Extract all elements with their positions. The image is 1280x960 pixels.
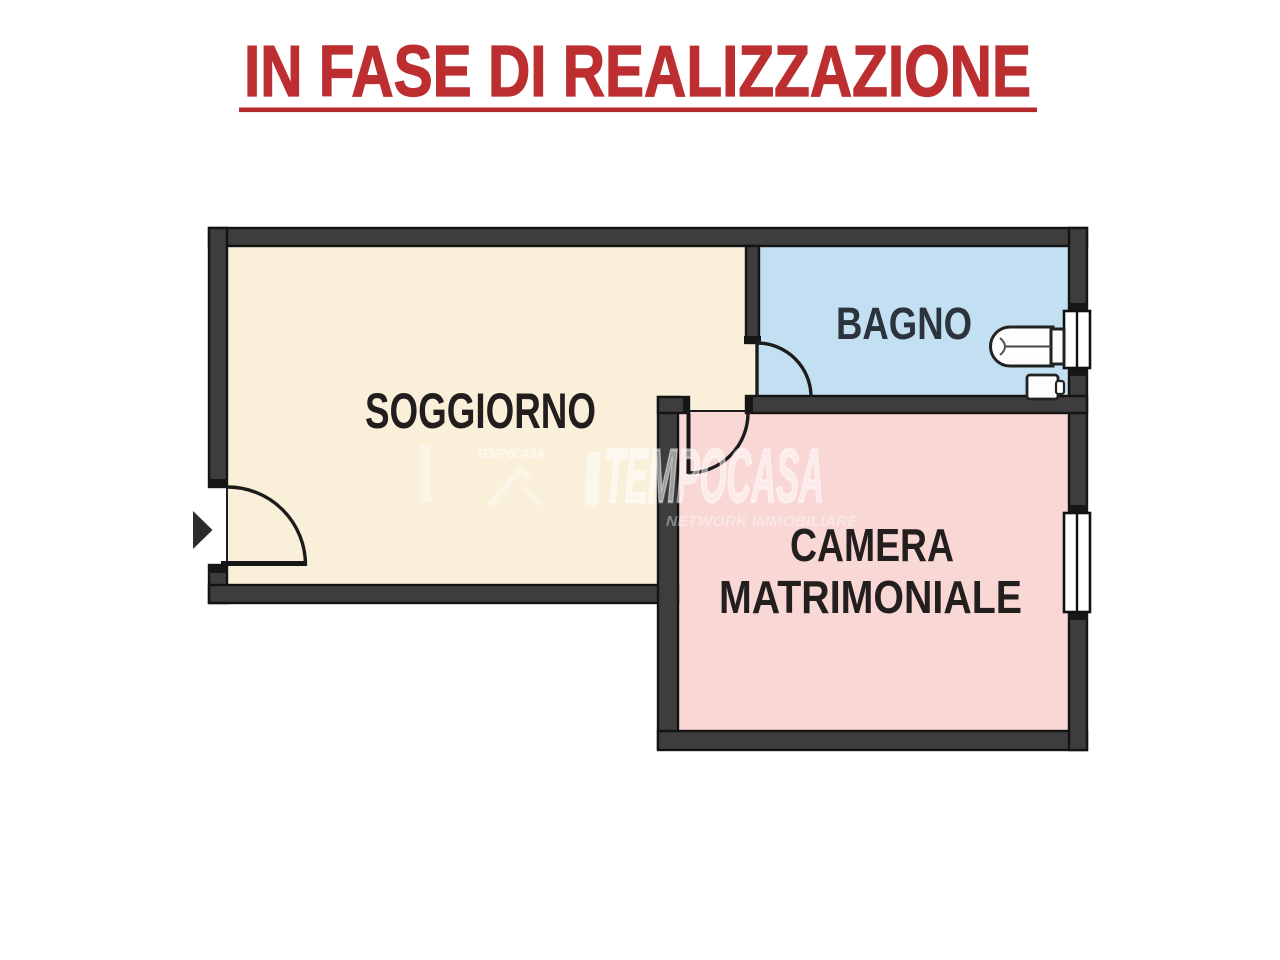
svg-text:IN FASE DI REALIZZAZIONE: IN FASE DI REALIZZAZIONE xyxy=(244,32,1031,112)
svg-text:TEMPOCASA: TEMPOCASA xyxy=(477,446,545,461)
svg-text:BAGNO: BAGNO xyxy=(836,298,972,349)
svg-text:SOGGIORNO: SOGGIORNO xyxy=(365,383,596,439)
svg-text:MATRIMONIALE: MATRIMONIALE xyxy=(719,571,1022,623)
svg-text:TEMPOCASA: TEMPOCASA xyxy=(604,434,824,519)
svg-text:NETWORK IMMOBILIARE: NETWORK IMMOBILIARE xyxy=(666,513,859,530)
